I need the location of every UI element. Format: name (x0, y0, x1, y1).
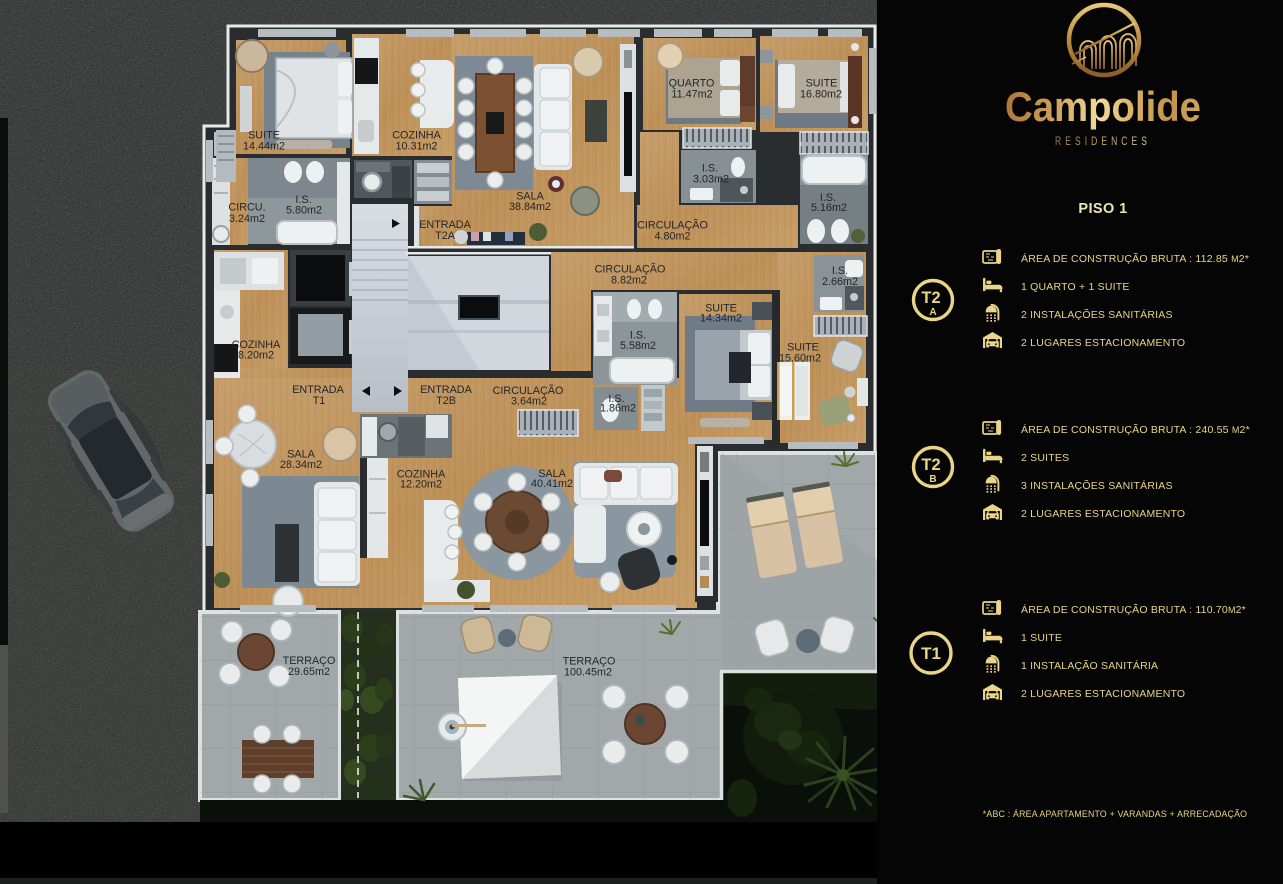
svg-text:5.16m2: 5.16m2 (811, 202, 847, 214)
svg-text:29.65m2: 29.65m2 (288, 666, 330, 678)
svg-text:3.03m2: 3.03m2 (693, 173, 729, 185)
svg-text:14.44m2: 14.44m2 (243, 141, 285, 153)
svg-text:T2A: T2A (435, 230, 456, 242)
svg-text:T1: T1 (921, 644, 941, 663)
svg-text:Campolide: Campolide (1005, 83, 1201, 130)
svg-text:ÁREA DE CONSTRUÇÃO BRUTA : 24: ÁREA DE CONSTRUÇÃO BRUTA : 240.55 M2* (1021, 423, 1250, 436)
svg-text:14.34m2: 14.34m2 (700, 313, 742, 325)
svg-text:*ABC : ÁREA APARTAMENTO + VAR: *ABC : ÁREA APARTAMENTO + VARANDAS + ARR… (983, 809, 1247, 819)
svg-text:T2B: T2B (436, 395, 456, 407)
svg-text:T1: T1 (313, 395, 326, 407)
svg-text:B: B (929, 474, 936, 485)
svg-text:3.64m2: 3.64m2 (511, 396, 547, 408)
svg-text:CIRCU.: CIRCU. (228, 201, 265, 213)
svg-text:2 LUGARES ESTACIONAMENTO: 2 LUGARES ESTACIONAMENTO (1021, 337, 1185, 349)
svg-text:1 QUARTO + 1 SUITE: 1 QUARTO + 1 SUITE (1021, 281, 1130, 293)
svg-text:12.20m2: 12.20m2 (400, 479, 442, 491)
svg-text:2 INSTALAÇÕES SANITÁRIAS: 2 INSTALAÇÕES SANITÁRIAS (1021, 308, 1173, 321)
svg-text:16.80m2: 16.80m2 (800, 89, 842, 101)
svg-text:8.82m2: 8.82m2 (611, 275, 647, 287)
svg-text:2 LUGARES ESTACIONAMENTO: 2 LUGARES ESTACIONAMENTO (1021, 508, 1185, 520)
svg-text:T2: T2 (921, 289, 940, 307)
svg-text:38.84m2: 38.84m2 (509, 201, 551, 213)
svg-text:ÁREA DE CONSTRUÇÃO BRUTA : 11: ÁREA DE CONSTRUÇÃO BRUTA : 112.85 M2* (1021, 252, 1249, 265)
svg-text:RESIDENCES: RESIDENCES (1055, 136, 1151, 148)
svg-text:8.20m2: 8.20m2 (238, 350, 274, 362)
svg-text:ÁREA DE CONSTRUÇÃO BRUTA : 11: ÁREA DE CONSTRUÇÃO BRUTA : 110.70M2* (1021, 603, 1246, 616)
svg-text:15.60m2: 15.60m2 (779, 353, 821, 365)
svg-text:5.58m2: 5.58m2 (620, 340, 656, 352)
svg-text:QUARTO: QUARTO (669, 78, 715, 90)
svg-text:T2: T2 (921, 456, 940, 474)
svg-text:3.24m2: 3.24m2 (229, 213, 265, 225)
svg-text:A: A (929, 307, 936, 318)
svg-text:28.34m2: 28.34m2 (280, 459, 322, 471)
svg-text:1 INSTALAÇÃO SANITÁRIA: 1 INSTALAÇÃO SANITÁRIA (1021, 659, 1158, 672)
svg-text:5.80m2: 5.80m2 (286, 205, 322, 217)
svg-text:SUITE: SUITE (806, 78, 838, 90)
svg-text:11.47m2: 11.47m2 (671, 89, 712, 101)
svg-text:3 INSTALAÇÕES SANITÁRIAS: 3 INSTALAÇÕES SANITÁRIAS (1021, 479, 1173, 492)
svg-text:10.31m2: 10.31m2 (395, 140, 437, 152)
svg-text:1.86m2: 1.86m2 (600, 403, 636, 415)
svg-text:1 SUITE: 1 SUITE (1021, 632, 1062, 644)
svg-text:100.45m2: 100.45m2 (564, 667, 612, 679)
svg-text:2 SUITES: 2 SUITES (1021, 452, 1069, 464)
svg-text:PISO 1: PISO 1 (1078, 201, 1127, 217)
svg-text:2 LUGARES ESTACIONAMENTO: 2 LUGARES ESTACIONAMENTO (1021, 688, 1185, 700)
svg-text:2.66m2: 2.66m2 (822, 276, 858, 288)
svg-text:4.80m2: 4.80m2 (654, 230, 690, 242)
svg-text:40.41m2: 40.41m2 (531, 478, 573, 490)
